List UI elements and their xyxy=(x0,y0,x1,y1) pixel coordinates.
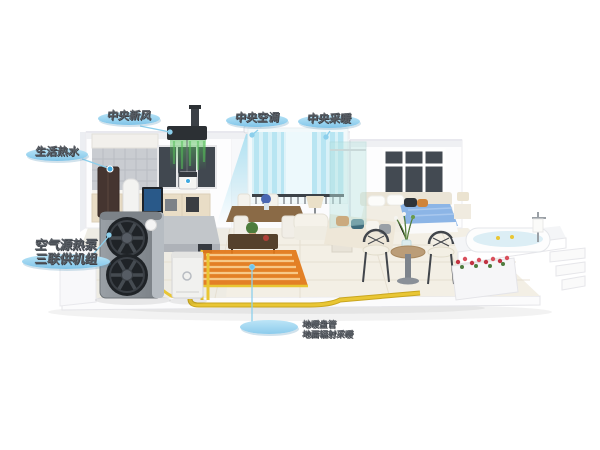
hydronic-module xyxy=(172,252,203,298)
label-floor-heating-line2: 地面辐射采暖 xyxy=(301,330,353,340)
fresh-air-flow xyxy=(170,140,206,170)
duct-pipe xyxy=(191,107,199,127)
label-air-conditioning: 中央空调 xyxy=(226,112,288,124)
label-heat-pump-line1: 空气源热泵 xyxy=(13,238,119,252)
label-floor-heating-pill xyxy=(240,320,298,334)
callout-dot-tank xyxy=(107,166,113,172)
label-fresh-air-text: 中央新风 xyxy=(97,110,160,122)
bedside-lamp xyxy=(457,192,469,201)
kitchen-island xyxy=(156,216,220,244)
house-illustration: 中央新风 中央空调 中央采暖 生活热水 空气源热泵 三联供机组 地暖盘管 地面辐… xyxy=(0,0,600,450)
callout-dot-device xyxy=(186,179,191,184)
label-hot-water-text: 生活热水 xyxy=(25,146,88,158)
kitchen-appliance xyxy=(165,199,177,211)
label-hot-water: 生活热水 xyxy=(26,146,88,158)
label-heating: 中央采暖 xyxy=(298,113,360,125)
water-tank-cylinder xyxy=(123,179,139,217)
kitchen-upper-cabinet xyxy=(92,134,158,148)
callout-dot-floor xyxy=(250,265,255,270)
bedroom-window xyxy=(384,150,444,194)
label-fresh-air: 中央新风 xyxy=(98,110,160,122)
table-plant xyxy=(246,222,258,234)
label-heat-pump-line2: 三联供机组 xyxy=(13,252,119,266)
label-heating-text: 中央采暖 xyxy=(297,113,360,125)
house-scene xyxy=(0,0,600,450)
label-heat-pump: 空气源热泵 三联供机组 xyxy=(14,238,118,266)
accent-pillow xyxy=(404,198,417,207)
pillow xyxy=(368,196,385,206)
ducted-indoor-unit xyxy=(167,126,207,140)
shower-enclosure xyxy=(330,142,366,228)
coffee-machine xyxy=(186,197,199,212)
flower-centerpiece xyxy=(261,194,271,204)
steps xyxy=(550,248,585,290)
nightstand xyxy=(454,204,471,219)
floor-lamp xyxy=(306,196,324,208)
pillow xyxy=(387,195,404,205)
label-air-conditioning-text: 中央空调 xyxy=(225,112,288,124)
brand-logo-badge xyxy=(146,220,157,231)
label-floor-heating: 地暖盘管 地面辐射采暖 xyxy=(240,320,353,339)
accent-pillow xyxy=(417,199,428,207)
